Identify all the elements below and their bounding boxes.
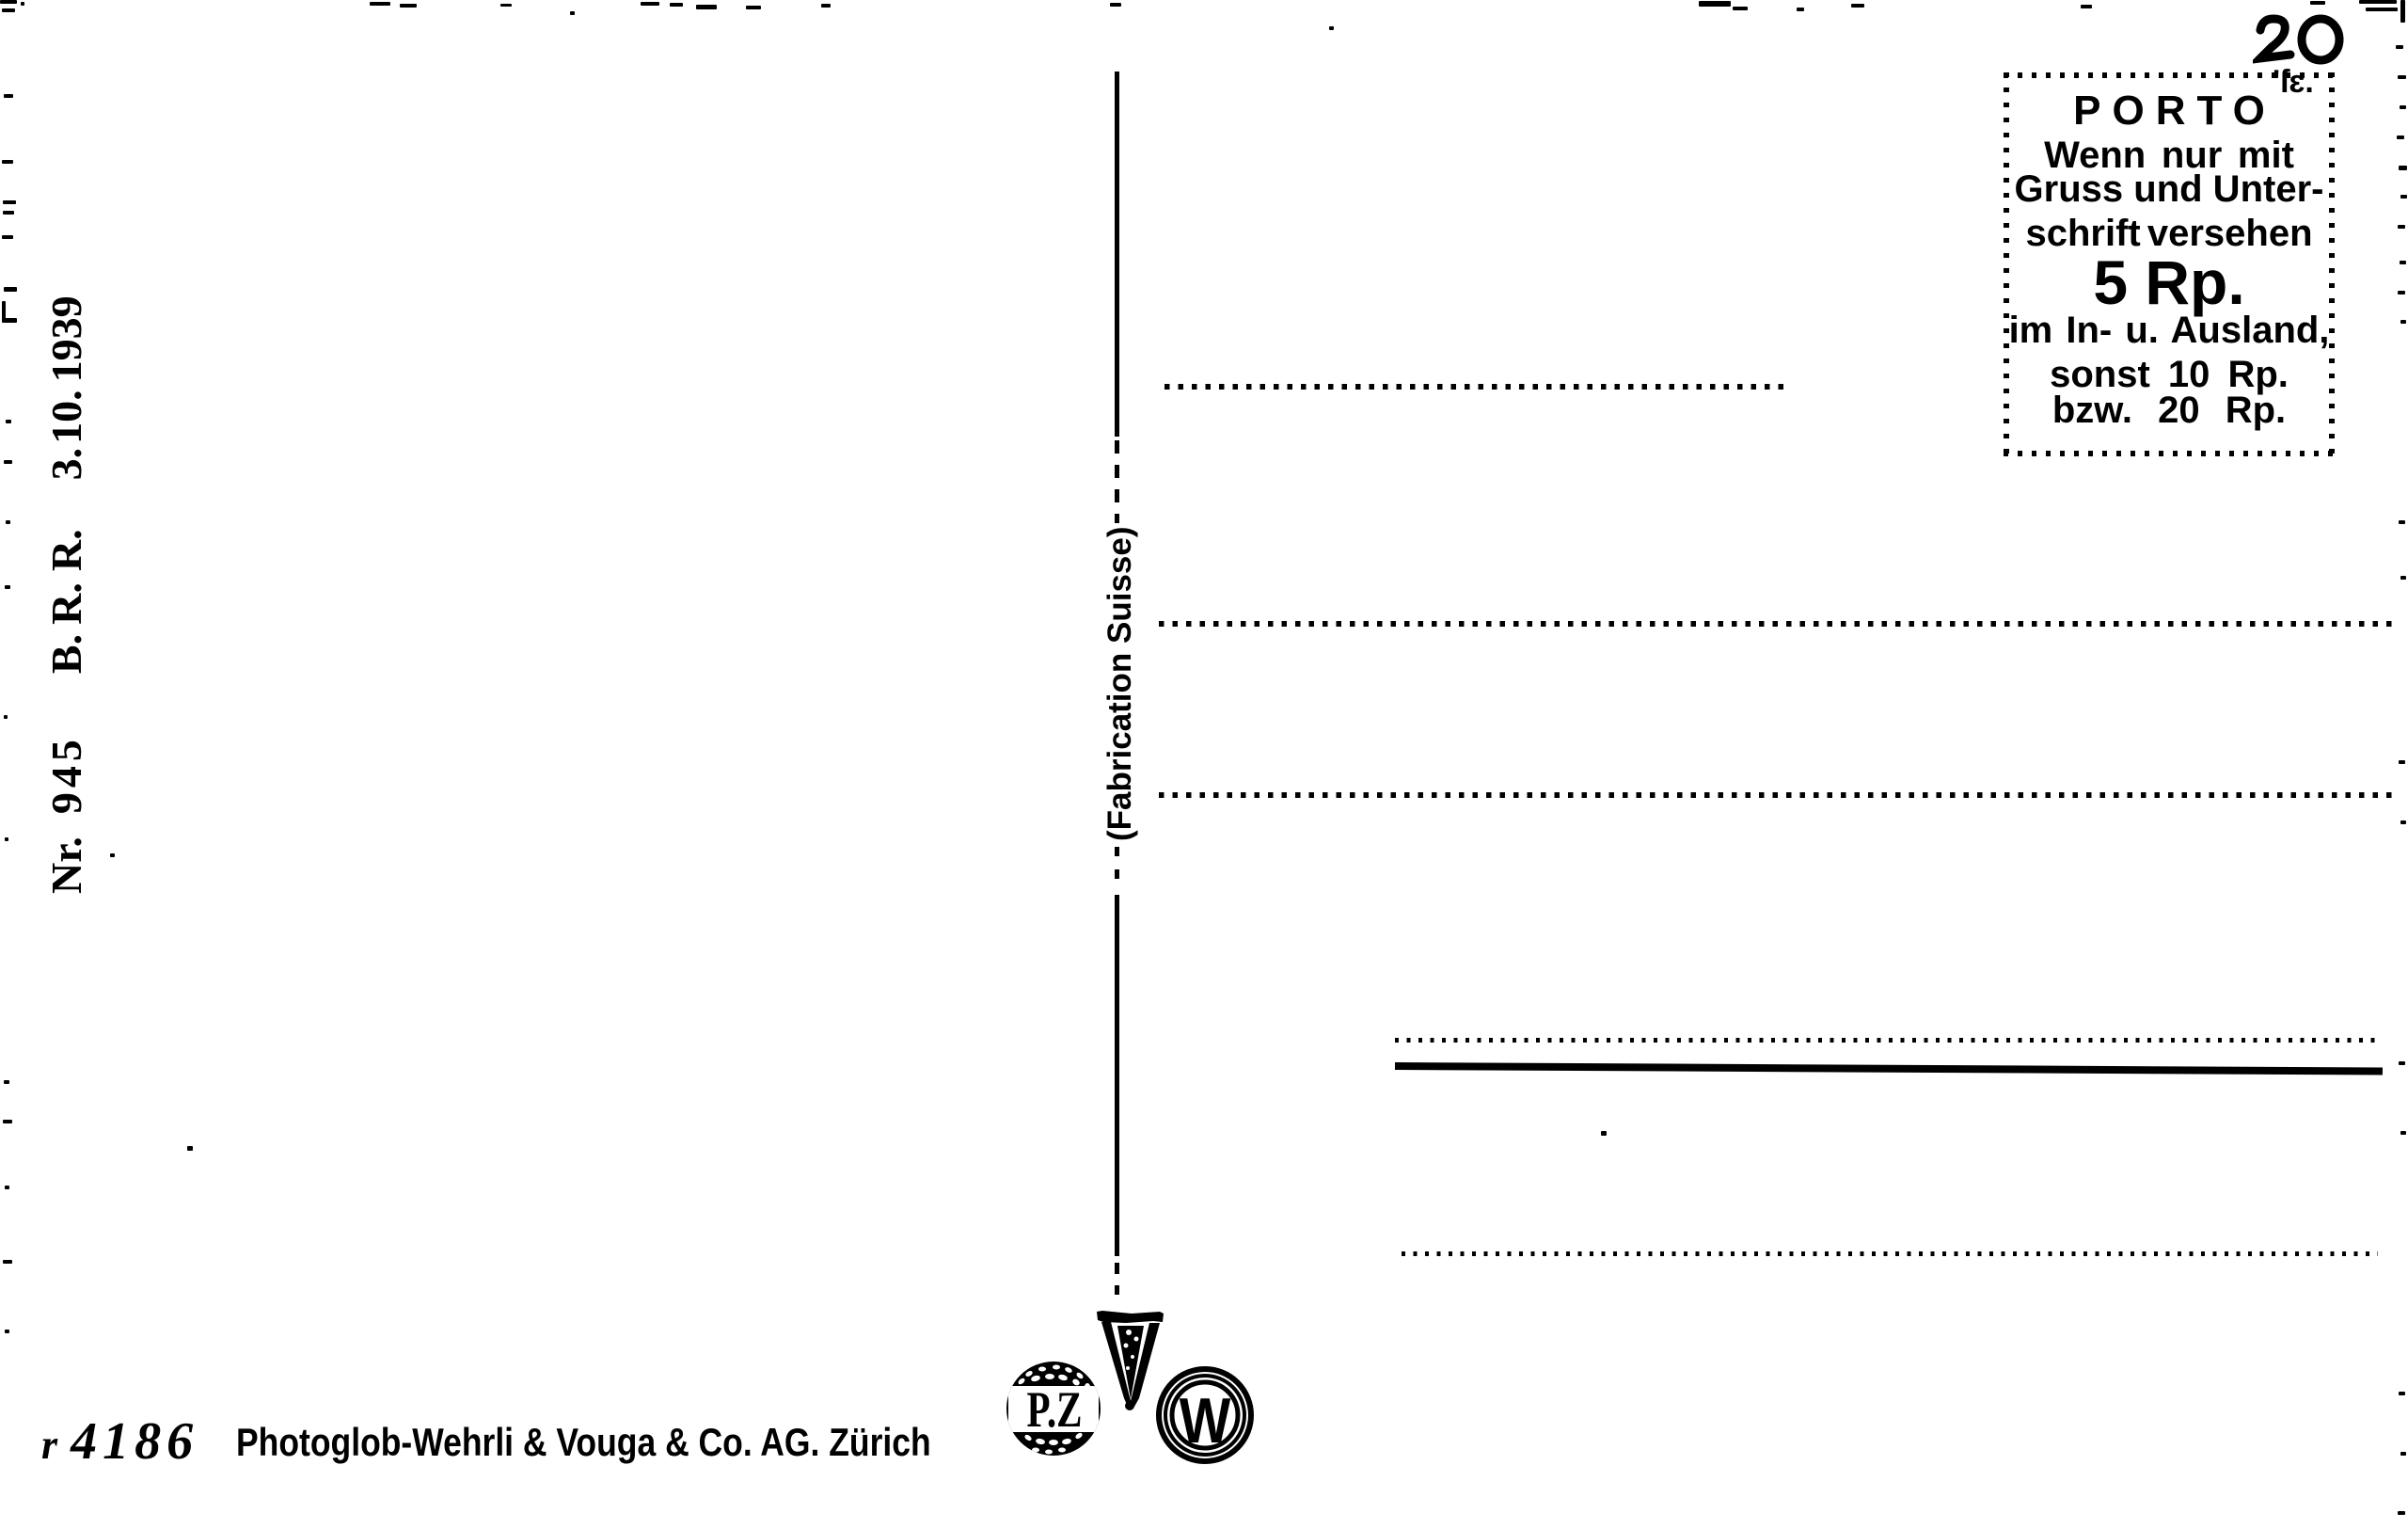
svg-text:P.Z: P.Z [1027,1382,1083,1439]
svg-text:W: W [1180,1386,1231,1457]
